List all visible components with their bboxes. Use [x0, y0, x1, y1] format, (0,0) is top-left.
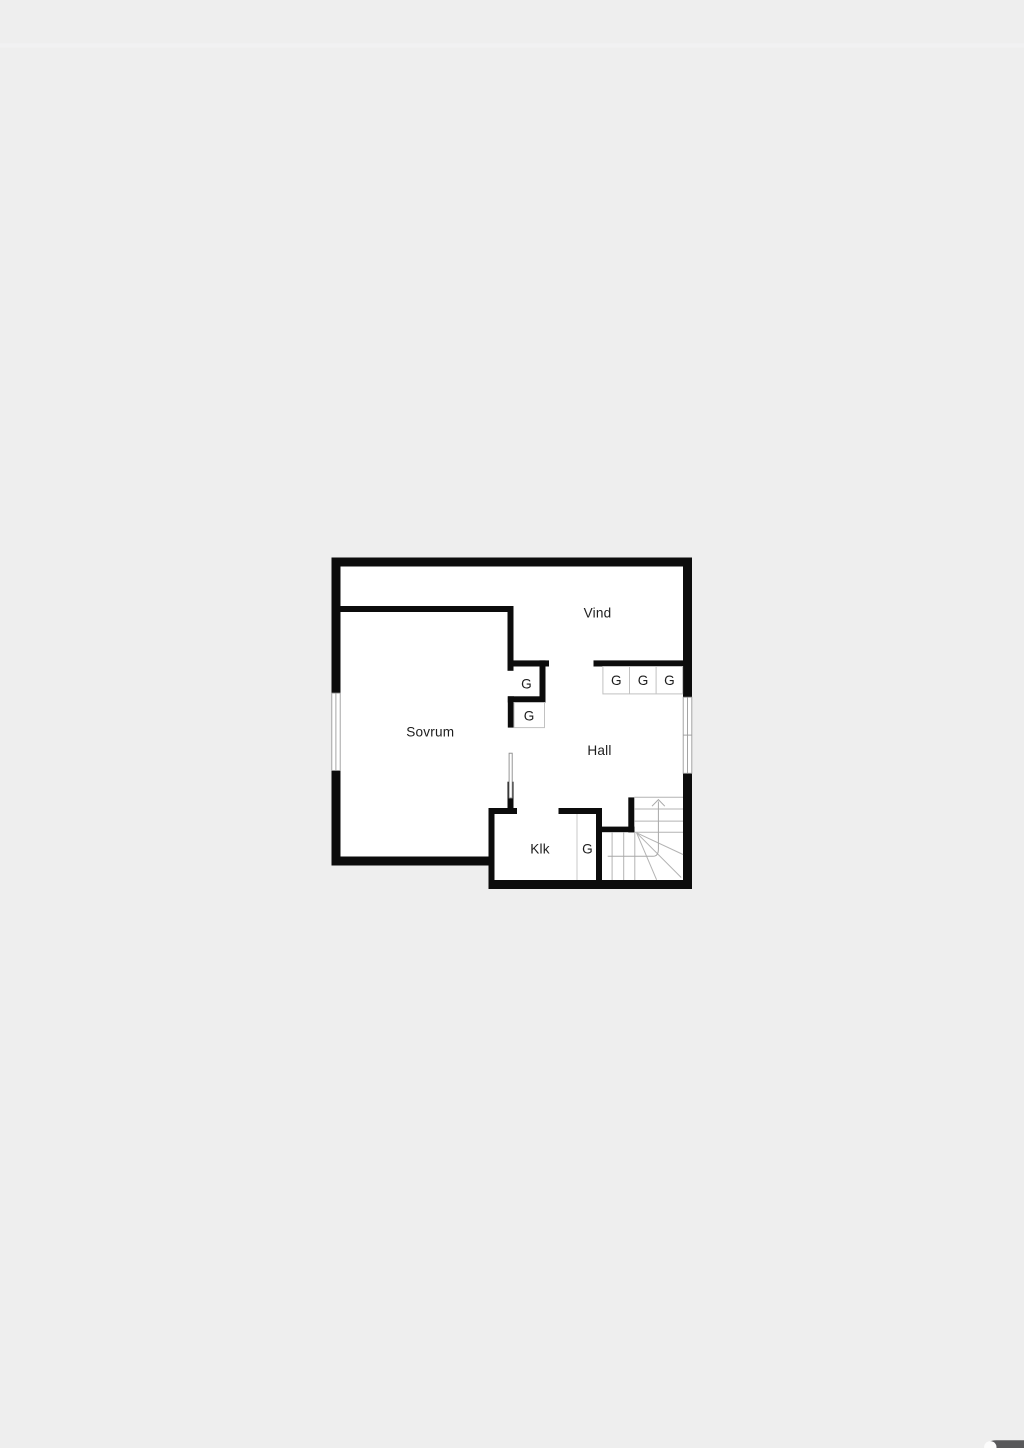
svg-text:Hall: Hall — [587, 743, 611, 758]
svg-text:Vind: Vind — [584, 605, 612, 620]
svg-text:Klk: Klk — [530, 842, 549, 857]
svg-text:G: G — [664, 673, 675, 688]
svg-text:G: G — [521, 677, 532, 692]
svg-text:G: G — [611, 673, 622, 688]
svg-text:G: G — [524, 708, 535, 723]
svg-text:G: G — [582, 842, 593, 857]
svg-text:G: G — [638, 673, 649, 688]
svg-text:Sovrum: Sovrum — [406, 725, 454, 740]
